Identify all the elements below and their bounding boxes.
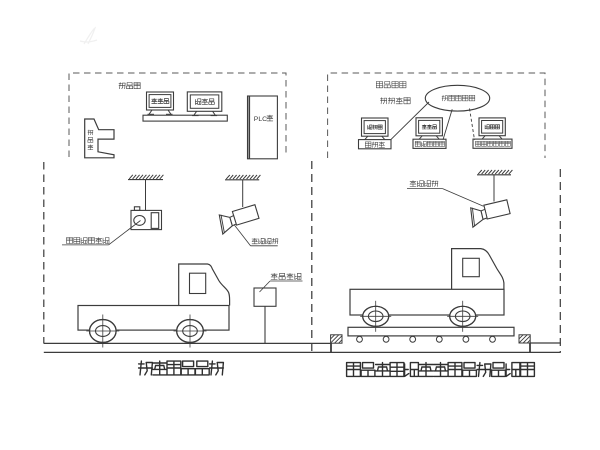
svg-text:PLC: PLC (254, 116, 267, 123)
